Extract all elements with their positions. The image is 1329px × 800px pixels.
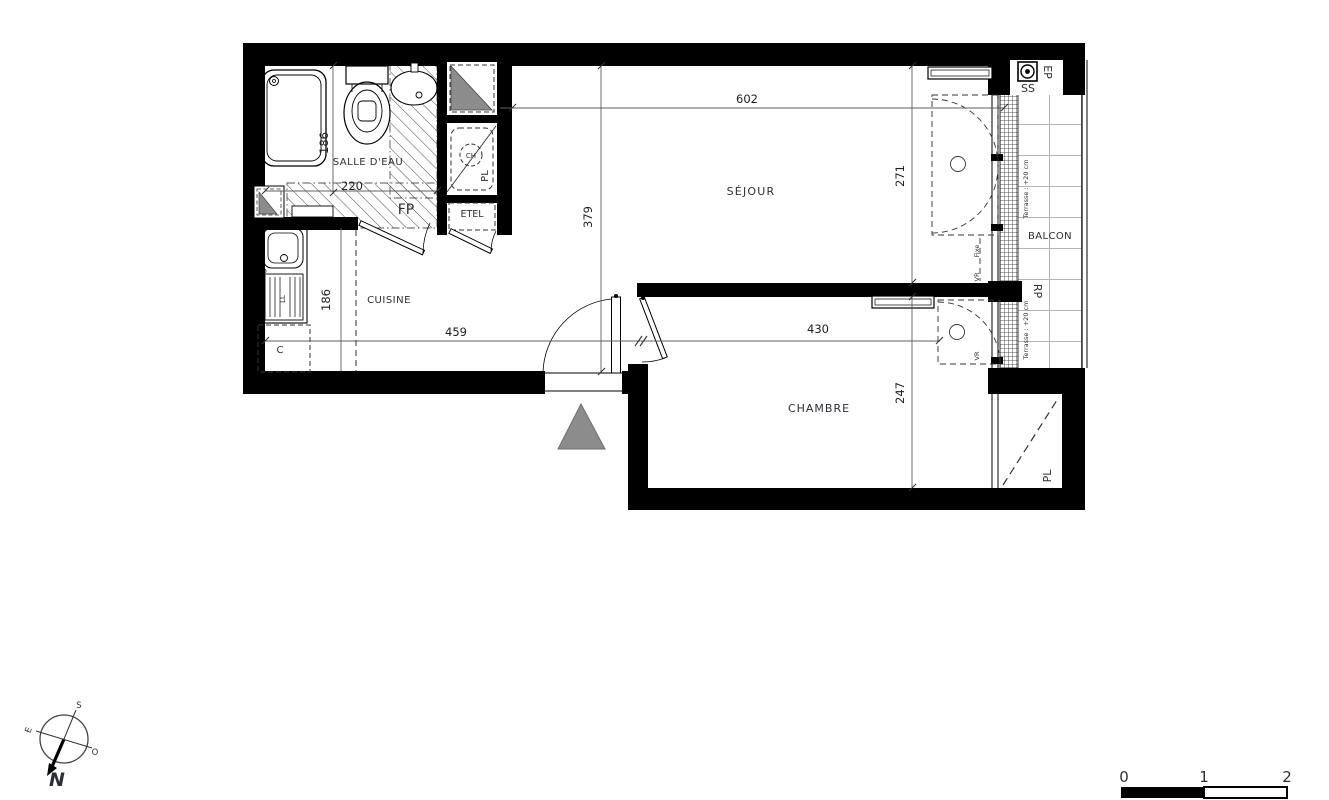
sejour-window-arc-bottom bbox=[932, 167, 998, 233]
room-label-chambre: CHAMBRE bbox=[788, 402, 850, 415]
dim-247-label: 247 bbox=[893, 382, 907, 404]
entrance-door-hinge bbox=[614, 294, 618, 298]
chambre-window-arc bbox=[938, 302, 1000, 364]
etel-label: ETEL bbox=[460, 209, 484, 220]
compass-e-label: E bbox=[24, 726, 35, 734]
scale-0-label: 0 bbox=[1119, 768, 1129, 786]
wall-niche-divider1 bbox=[437, 115, 512, 123]
wall-niche-divider2 bbox=[437, 195, 512, 203]
wall-pl-right bbox=[1062, 394, 1085, 510]
radiator-sejour-icon bbox=[928, 67, 992, 79]
fixe-label: Fixe bbox=[973, 245, 981, 258]
ep-downpipe-dot-icon bbox=[1025, 69, 1030, 74]
compass-needle-n bbox=[51, 739, 64, 769]
terrasse-label-2: Terrasse : +20 cm bbox=[1022, 301, 1030, 361]
floor-plan-page: EP SS CH PL ETEL bbox=[0, 0, 1329, 800]
window-mullion-3 bbox=[991, 357, 1003, 364]
chambre-window-symbol bbox=[950, 325, 965, 340]
pl-chambre-label: PL bbox=[1041, 469, 1054, 483]
radiator-chambre-icon bbox=[872, 296, 934, 308]
room-label-salle-deau: SALLE D'EAU bbox=[333, 157, 403, 168]
room-label-balcon: BALCON bbox=[1028, 231, 1072, 242]
walls bbox=[243, 43, 1085, 510]
compass-s-label: S bbox=[76, 701, 81, 711]
bathtub-drain-icon bbox=[273, 80, 276, 83]
dim-459-label: 459 bbox=[445, 325, 467, 339]
fp-label: FP bbox=[398, 202, 415, 218]
dim-186a-label: 186 bbox=[317, 132, 331, 154]
etel-door-leaf bbox=[449, 229, 493, 254]
scale-bar: 0 1 2 bbox=[1119, 768, 1292, 798]
wall-balcony-bottom bbox=[988, 368, 1085, 394]
compass-rose: S E O N bbox=[24, 701, 99, 791]
toilet-bowl-icon bbox=[344, 82, 390, 144]
wall-top bbox=[243, 43, 1010, 66]
chambre-door-hinge bbox=[641, 296, 645, 300]
scale-1-label: 1 bbox=[1199, 768, 1209, 786]
bathroom-shelf bbox=[292, 206, 333, 217]
wall-sejour-chambre-divider bbox=[637, 283, 988, 297]
window-mullion-2 bbox=[991, 224, 1003, 231]
ch-label: CH bbox=[466, 152, 476, 160]
scale-2-label: 2 bbox=[1282, 768, 1292, 786]
vr-chambre-label: VR bbox=[973, 351, 981, 360]
toilet-seat-icon bbox=[358, 101, 376, 121]
dim-602-label: 602 bbox=[736, 92, 758, 106]
chambre-door-leaf bbox=[640, 297, 668, 359]
bathtub-inner bbox=[267, 75, 321, 161]
sejour-window-arc-top bbox=[932, 99, 998, 165]
entrance-triangle-marker bbox=[558, 404, 605, 449]
toilet-bowl-inner bbox=[352, 90, 382, 132]
dim-271-label: 271 bbox=[893, 165, 907, 187]
entrance-door-leaf bbox=[612, 297, 621, 373]
balcony bbox=[1000, 60, 1087, 368]
kitchen-sink-icon bbox=[263, 228, 303, 268]
compass-n-label: N bbox=[49, 769, 65, 791]
cooker-zone-dashed bbox=[258, 325, 310, 372]
chambre-door-arc bbox=[642, 358, 665, 362]
compass-o-label: O bbox=[92, 748, 99, 758]
wall-balcony-corner bbox=[1063, 43, 1085, 95]
dim-220-label: 220 bbox=[341, 179, 363, 193]
c-label: C bbox=[277, 345, 284, 356]
scale-bar-segment-open bbox=[1204, 787, 1287, 798]
dim-379-label: 379 bbox=[581, 206, 595, 228]
toilet-tank-icon bbox=[346, 66, 388, 84]
washbasin-icon bbox=[391, 71, 437, 105]
window-projections bbox=[932, 95, 1000, 364]
wall-rp-block bbox=[988, 281, 1022, 302]
vr-sejour-label: VR bbox=[973, 272, 981, 281]
dim-430-label: 430 bbox=[807, 322, 829, 336]
floor-plan-drawing: EP SS CH PL ETEL bbox=[0, 0, 1329, 800]
etel-door-arc bbox=[491, 231, 496, 251]
compass-cross-axis bbox=[36, 731, 92, 748]
dim-186b-label: 186 bbox=[319, 289, 333, 311]
wall-niche-left bbox=[437, 43, 447, 235]
wall-chambre-bottom bbox=[628, 488, 1085, 510]
kitchen-sink-inner bbox=[268, 233, 298, 263]
terrasse-label-1: Terrasse : +20 cm bbox=[1022, 160, 1030, 220]
room-label-sejour: SÉJOUR bbox=[727, 185, 776, 198]
washbasin-tap-icon bbox=[411, 63, 418, 72]
rp-label: RP bbox=[1031, 284, 1044, 299]
ep-corner: EP SS bbox=[1010, 60, 1063, 95]
bathtub-faucet-icon bbox=[270, 77, 279, 86]
sejour-window-symbol bbox=[951, 157, 966, 172]
ll-label: LL bbox=[279, 295, 287, 303]
room-label-cuisine: CUISINE bbox=[367, 295, 411, 306]
compass-needle-s bbox=[64, 710, 76, 739]
ss-label: SS bbox=[1021, 82, 1035, 95]
wall-bottom-kitchen bbox=[243, 371, 545, 394]
kitchen-sink-drain-icon bbox=[281, 255, 288, 262]
ep-label: EP bbox=[1041, 65, 1054, 79]
wall-niche-right bbox=[497, 43, 512, 235]
pl-closet: PL bbox=[1003, 397, 1059, 485]
pl-niche-label: PL bbox=[480, 170, 491, 182]
scale-bar-segment-filled bbox=[1121, 787, 1204, 798]
